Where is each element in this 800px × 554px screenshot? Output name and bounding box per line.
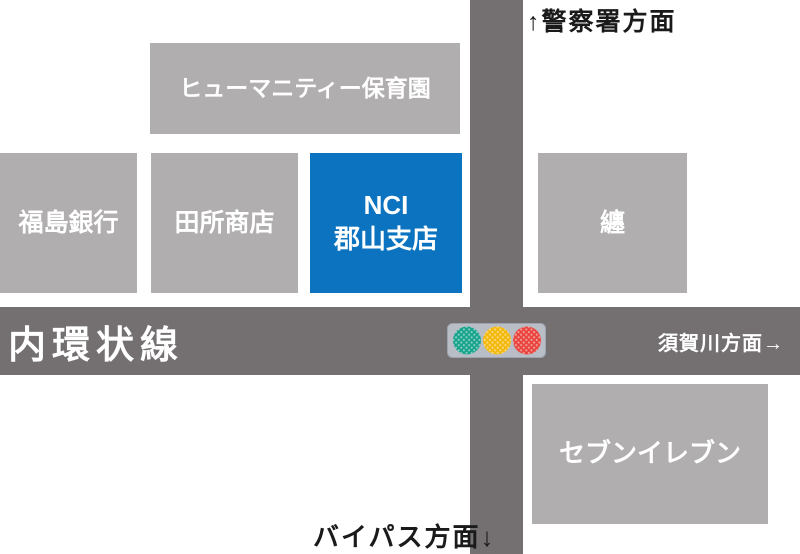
building-nursery-label: ヒューマニティー保育園 [179,74,431,104]
road-name-label: 内環状線 [8,308,184,374]
building-tadokoro-shoten: 田所商店 [151,153,298,293]
traffic-light-red-lamp [513,327,541,355]
direction-police-label: ↑警察署方面 [527,2,677,38]
direction-bypass-label: バイパス方面↓ [313,517,495,554]
traffic-light-icon [447,323,546,358]
building-matoi-label: 纏 [600,207,625,240]
vertical-road [470,0,523,554]
building-nci-label-line2: 郡山支店 [334,223,438,257]
traffic-light-green-lamp [453,327,481,355]
building-matoi: 纏 [538,153,687,293]
building-seven-eleven-label: セブンイレブン [559,437,741,471]
building-tadokoro-shoten-label: 田所商店 [174,207,274,240]
building-nursery: ヒューマニティー保育園 [150,43,460,134]
building-fukushima-bank-label: 福島銀行 [18,207,118,240]
direction-sukagawa-label: 須賀川方面→ [658,309,784,373]
building-seven-eleven: セブンイレブン [532,384,768,524]
access-map: 内環状線 須賀川方面→ ↑警察署方面 バイパス方面↓ ヒューマニティー保育園 福… [0,0,800,554]
building-nci-label-line1: NCI [364,189,409,223]
building-nci-koriyama-branch: NCI 郡山支店 [310,153,462,293]
building-fukushima-bank: 福島銀行 [0,153,137,293]
traffic-light-yellow-lamp [483,327,511,355]
